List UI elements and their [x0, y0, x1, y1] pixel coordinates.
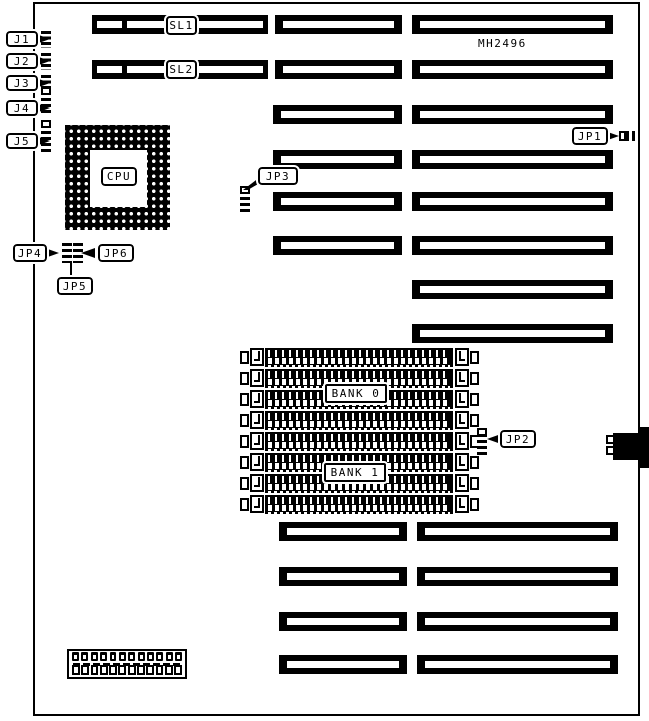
pin-cell: [100, 652, 107, 661]
label-j5: J5: [6, 133, 38, 149]
simm-teeth: [268, 455, 450, 462]
label-bank1-text: BANK 1: [331, 466, 380, 479]
pin-cell: [165, 665, 173, 675]
simm-clip: [455, 432, 469, 450]
simm-contact-bar: [265, 495, 453, 514]
simm-tab: [470, 393, 479, 406]
simm-teeth: [268, 434, 450, 441]
pin-cell: [477, 428, 487, 436]
slot-opening: [287, 528, 399, 535]
label-jp3-text: JP3: [266, 170, 290, 183]
pin-cell: [81, 665, 89, 675]
simm-tab: [240, 414, 249, 427]
simm-clip: [455, 348, 469, 366]
pin-strip: [477, 436, 487, 455]
expansion-slot: [412, 324, 613, 343]
simm-clip: [250, 348, 264, 366]
simm-cells: [268, 358, 450, 364]
pin-cell: [118, 665, 126, 675]
expansion-slot: [412, 192, 613, 211]
callout-tail-jp2: [487, 434, 501, 444]
simm-cells: [268, 442, 450, 448]
slot-opening: [97, 21, 122, 28]
simm-cells: [268, 421, 450, 427]
callout-tail-j2: [36, 56, 50, 66]
label-sl1-text: SL1: [169, 19, 193, 32]
callout-tail-jp6: [81, 248, 95, 258]
pin-cell: [147, 652, 154, 661]
expansion-slot: [417, 655, 618, 674]
slot-opening: [281, 111, 394, 118]
slot-opening: [420, 66, 605, 73]
expansion-slot: [412, 150, 613, 169]
simm-tab: [470, 414, 479, 427]
expansion-slot: [279, 522, 407, 541]
expansion-slot: [412, 105, 613, 124]
slot-opening: [420, 198, 605, 205]
power-pin-row: [72, 652, 182, 661]
jumper-block-jp4-jp5-jp6: [62, 243, 83, 263]
expansion-slot: [279, 655, 407, 674]
label-jp5: JP5: [57, 277, 93, 295]
simm-tab: [470, 351, 479, 364]
pin-cell: [175, 652, 182, 661]
label-bank0: BANK 0: [325, 384, 387, 403]
simm-cells: [268, 484, 450, 490]
label-j3: J3: [6, 75, 38, 91]
pin-cell: [72, 665, 80, 675]
expansion-slot: [412, 280, 613, 299]
pin-cell: [137, 665, 145, 675]
expansion-slot: [279, 567, 407, 586]
slot-opening: [425, 618, 610, 625]
expansion-slot: [273, 192, 402, 211]
pin-cell: [109, 665, 117, 675]
simm-tab: [240, 498, 249, 511]
pin-cell: [146, 665, 154, 675]
part-number: MH2496: [478, 37, 527, 50]
slot-opening: [281, 198, 394, 205]
motherboard-diagram: MH2496 SL1 SL2 CPU J1 J2 J3 J4 J5: [0, 0, 649, 721]
simm-clip: [250, 369, 264, 387]
slot-opening: [420, 330, 605, 337]
simm-clip: [455, 390, 469, 408]
pin-cell: [156, 665, 164, 675]
simm-teeth: [268, 371, 450, 378]
callout-line-jp5: [70, 262, 72, 278]
pin-column: [62, 243, 72, 263]
simm-dash: [268, 407, 450, 409]
label-sl2: SL2: [166, 60, 197, 79]
simm-tab: [240, 351, 249, 364]
label-jp4-text: JP4: [18, 247, 42, 260]
pin-strip: [240, 194, 250, 212]
jumper-jp2: [477, 428, 487, 455]
pin-cell: [110, 652, 117, 661]
callout-tail-j5: [36, 136, 50, 146]
simm-contact-bar: [265, 411, 453, 430]
simm-tab: [240, 456, 249, 469]
label-jp1: JP1: [572, 127, 608, 145]
pin-cell: [128, 665, 136, 675]
expansion-slot: [412, 60, 613, 79]
keyboard-connector-edge: [640, 427, 649, 468]
slot-opening: [425, 661, 610, 668]
label-jp5-text: JP5: [63, 280, 87, 293]
slot-opening: [420, 242, 605, 249]
keyboard-connector-pin: [606, 435, 615, 444]
simm-clip: [455, 495, 469, 513]
simm-tab: [240, 435, 249, 448]
slot-opening: [420, 286, 605, 293]
label-j4-text: J4: [14, 102, 30, 115]
pin-cell: [119, 652, 126, 661]
slot-opening: [287, 618, 399, 625]
simm-dash: [268, 365, 450, 367]
slot-opening: [283, 21, 394, 28]
label-j1-text: J1: [14, 33, 30, 46]
label-j2-text: J2: [14, 55, 30, 68]
simm-clip: [250, 495, 264, 513]
label-j3-text: J3: [14, 77, 30, 90]
simm-slot: [240, 411, 479, 430]
simm-clip: [250, 411, 264, 429]
simm-slot: [240, 348, 479, 367]
simm-cells: [268, 505, 450, 511]
simm-tab: [470, 372, 479, 385]
power-connector: [67, 649, 187, 679]
simm-tab: [240, 393, 249, 406]
callout-tail-j4: [36, 103, 50, 113]
jumper-jp1: [619, 131, 639, 141]
label-jp2: JP2: [500, 430, 536, 448]
pin-cell: [91, 652, 98, 661]
simm-clip: [455, 369, 469, 387]
slot-opening: [420, 21, 605, 28]
pin-cell: [91, 665, 99, 675]
simm-clip: [455, 474, 469, 492]
simm-teeth: [268, 350, 450, 357]
simm-clip: [250, 453, 264, 471]
label-cpu-text: CPU: [107, 170, 131, 183]
label-bank0-text: BANK 0: [332, 387, 381, 400]
simm-slot: [240, 495, 479, 514]
simm-tab: [240, 477, 249, 490]
simm-slot: [240, 432, 479, 451]
slot-opening: [97, 66, 122, 73]
slot-opening: [287, 661, 399, 668]
expansion-slot: [412, 15, 613, 34]
simm-clip: [455, 411, 469, 429]
simm-tab: [470, 456, 479, 469]
label-j4: J4: [6, 100, 38, 116]
simm-dash: [268, 491, 450, 493]
pin-cell: [138, 652, 145, 661]
expansion-slot: [275, 60, 402, 79]
slot-opening: [420, 111, 605, 118]
slot-opening: [287, 573, 399, 580]
label-j5-text: J5: [14, 135, 30, 148]
expansion-slot: [412, 236, 613, 255]
pin-cell: [100, 665, 108, 675]
slot-opening: [281, 242, 394, 249]
label-jp2-text: JP2: [506, 433, 530, 446]
label-sl2-text: SL2: [169, 63, 193, 76]
slot-opening: [425, 528, 610, 535]
expansion-slot: [273, 105, 402, 124]
expansion-slot: [417, 522, 618, 541]
expansion-slot: [275, 15, 402, 34]
simm-contact-bar: [265, 348, 453, 367]
callout-tail-j3: [36, 78, 50, 88]
simm-teeth: [268, 497, 450, 504]
expansion-slot: [273, 236, 402, 255]
pin-cell: [72, 652, 79, 661]
power-pad-row: [72, 665, 182, 675]
pin-strip: [626, 131, 639, 141]
label-cpu: CPU: [101, 167, 137, 186]
label-sl1: SL1: [166, 16, 197, 35]
label-jp6-text: JP6: [104, 247, 128, 260]
label-j1: J1: [6, 31, 38, 47]
pin-cell: [41, 87, 51, 95]
expansion-slot: [279, 612, 407, 631]
simm-dash: [268, 428, 450, 430]
pin-cell: [156, 652, 163, 661]
pin-cell: [174, 665, 182, 675]
label-jp1-text: JP1: [578, 130, 602, 143]
simm-clip: [250, 390, 264, 408]
keyboard-connector-body: [613, 433, 642, 460]
pin-cell: [81, 652, 88, 661]
simm-clip: [250, 432, 264, 450]
label-bank1: BANK 1: [324, 463, 386, 482]
slot-opening: [281, 156, 394, 163]
simm-dash: [268, 512, 450, 514]
slot-opening: [420, 156, 605, 163]
simm-tab: [470, 498, 479, 511]
simm-dash: [268, 449, 450, 451]
label-jp4: JP4: [13, 244, 47, 262]
simm-teeth: [268, 413, 450, 420]
pin-cell: [619, 131, 626, 141]
simm-clip: [250, 474, 264, 492]
simm-tab: [240, 372, 249, 385]
callout-tail-j1: [36, 34, 50, 44]
pin-cell: [41, 120, 51, 128]
callout-tail-jp4: [45, 248, 59, 258]
expansion-slot: [417, 567, 618, 586]
simm-tab: [470, 477, 479, 490]
label-jp3: JP3: [258, 167, 298, 185]
slot-opening: [425, 573, 610, 580]
simm-clip: [455, 453, 469, 471]
simm-contact-bar: [265, 432, 453, 451]
expansion-slot: [417, 612, 618, 631]
label-jp6: JP6: [98, 244, 134, 262]
pin-cell: [166, 652, 173, 661]
pin-cell: [128, 652, 135, 661]
slot-opening: [283, 66, 394, 73]
label-j2: J2: [6, 53, 38, 69]
keyboard-connector-pin: [606, 446, 615, 455]
